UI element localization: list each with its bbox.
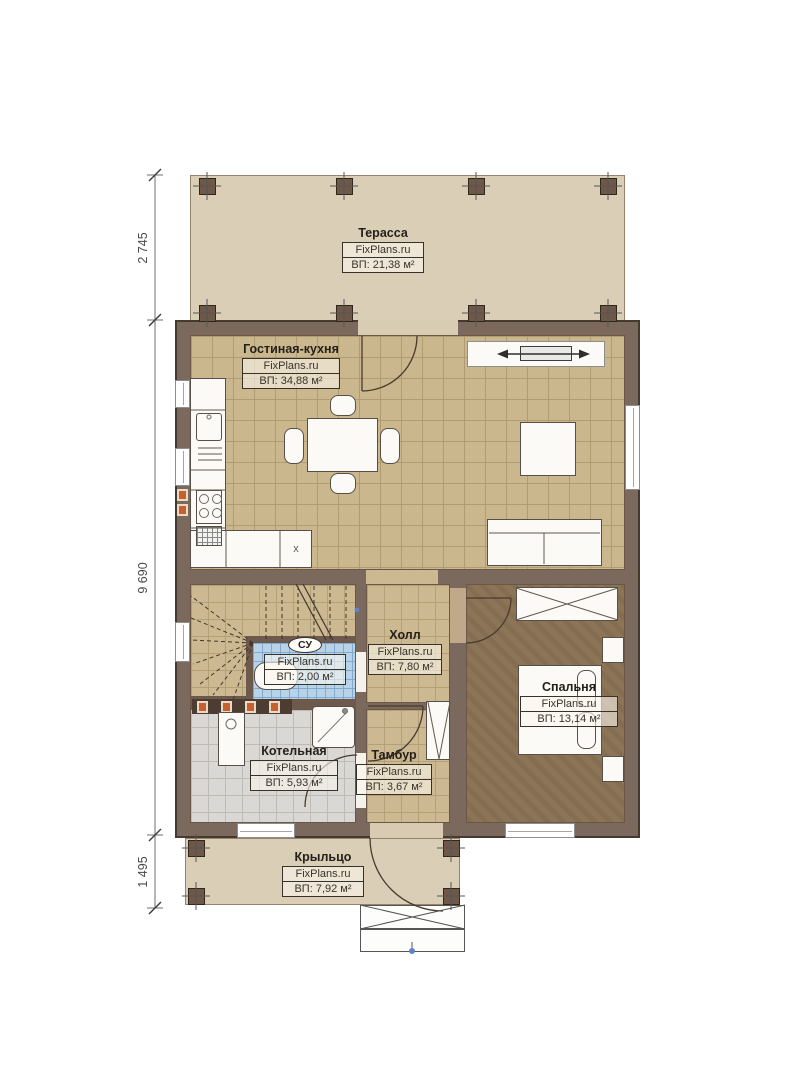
- area-row: ВП: 7,92 м²: [283, 882, 363, 896]
- brand-row: FixPlans.ru: [521, 697, 617, 712]
- floor-plan: 2 745 9 690 1 495 x: [0, 0, 792, 1080]
- area-row: ВП: 21,38 м²: [343, 258, 423, 272]
- label-box: FixPlans.ru ВП: 7,92 м²: [282, 866, 364, 897]
- tv: [520, 346, 572, 361]
- brand-row: FixPlans.ru: [251, 761, 337, 776]
- appliance-mark: x: [280, 532, 312, 566]
- column-post: [468, 305, 485, 322]
- area-row: ВП: 13,14 м²: [521, 712, 617, 726]
- bathroom-door-opening: [356, 652, 366, 692]
- terrace-door-opening: [358, 320, 458, 335]
- column-post: [443, 840, 460, 857]
- area-row: ВП: 5,93 м²: [251, 776, 337, 790]
- column-post: [600, 178, 617, 195]
- shower-tray: [312, 706, 355, 748]
- column-post: [336, 178, 353, 195]
- entry-step-upper: [360, 905, 465, 929]
- room-name: Спальня: [542, 680, 596, 694]
- chair: [330, 395, 356, 416]
- column-post: [199, 305, 216, 322]
- nightstand: [602, 756, 624, 782]
- chair: [284, 428, 304, 464]
- label-box: FixPlans.ru ВП: 34,88 м²: [242, 358, 340, 389]
- brand-row: FixPlans.ru: [243, 359, 339, 374]
- brand-row: FixPlans.ru: [265, 655, 345, 670]
- label-box: FixPlans.ru ВП: 7,80 м²: [368, 644, 442, 675]
- room-name: Холл: [389, 628, 420, 642]
- living-hall-opening: [366, 570, 438, 584]
- vent-block-icon: [245, 701, 256, 713]
- coffee-table: [520, 422, 576, 476]
- column-post: [336, 305, 353, 322]
- window: [505, 823, 575, 838]
- dimension-value: 2 745: [136, 232, 150, 263]
- bedroom-label: Спальня FixPlans.ru ВП: 13,14 м²: [520, 680, 618, 727]
- window: [175, 448, 190, 486]
- label-box: FixPlans.ru ВП: 21,38 м²: [342, 242, 424, 273]
- label-box: FixPlans.ru ВП: 13,14 м²: [520, 696, 618, 727]
- boiler-room-label: Котельная FixPlans.ru ВП: 5,93 м²: [250, 744, 338, 791]
- brand-row: FixPlans.ru: [357, 765, 431, 780]
- vent-block-icon: [177, 504, 188, 516]
- vent-block-icon: [269, 701, 280, 713]
- window: [175, 622, 190, 662]
- area-row: ВП: 34,88 м²: [243, 374, 339, 388]
- porch-label: Крыльцо FixPlans.ru ВП: 7,92 м²: [282, 850, 364, 897]
- dimension-value: 1 495: [136, 856, 150, 887]
- room-name: Котельная: [261, 744, 326, 758]
- dimension-value: 9 690: [136, 562, 150, 593]
- brand-row: FixPlans.ru: [343, 243, 423, 258]
- bedroom-door-opening: [450, 588, 466, 643]
- brand-row: FixPlans.ru: [283, 867, 363, 882]
- column-post: [443, 888, 460, 905]
- dining-table: [307, 418, 378, 472]
- chair: [380, 428, 400, 464]
- entry-step-lower: [360, 929, 465, 952]
- area-row: ВП: 2,00 м²: [265, 670, 345, 684]
- area-row: ВП: 7,80 м²: [369, 660, 441, 674]
- vent-block-icon: [177, 489, 188, 501]
- tambour-label: Тамбур FixPlans.ru ВП: 3,67 м²: [356, 748, 432, 795]
- area-row: ВП: 3,67 м²: [357, 780, 431, 794]
- dimension-lines: [147, 169, 163, 914]
- column-post: [199, 178, 216, 195]
- label-box: FixPlans.ru ВП: 3,67 м²: [356, 764, 432, 795]
- entrance-door-opening: [370, 823, 443, 838]
- room-name: СУ: [288, 637, 322, 653]
- stove: [196, 490, 222, 524]
- terrace-label: Терасса FixPlans.ru ВП: 21,38 м²: [342, 226, 424, 273]
- label-box: FixPlans.ru ВП: 5,93 м²: [250, 760, 338, 791]
- sofa: [487, 519, 602, 566]
- chair: [330, 473, 356, 494]
- column-post: [188, 888, 205, 905]
- window: [625, 405, 640, 490]
- bathroom-label: СУ FixPlans.ru ВП: 2,00 м²: [264, 637, 346, 685]
- vent-block-icon: [197, 701, 208, 713]
- brand-row: FixPlans.ru: [369, 645, 441, 660]
- boiler-unit: [218, 712, 245, 766]
- room-name: Крыльцо: [295, 850, 352, 864]
- window: [237, 823, 295, 838]
- room-name: Тамбур: [371, 748, 416, 762]
- living-kitchen-label: Гостиная-кухня FixPlans.ru ВП: 34,88 м²: [242, 342, 340, 389]
- hall-label: Холл FixPlans.ru ВП: 7,80 м²: [368, 628, 442, 675]
- column-post: [468, 178, 485, 195]
- wardrobe: [516, 587, 618, 621]
- label-box: FixPlans.ru ВП: 2,00 м²: [264, 654, 346, 685]
- room-name: Терасса: [358, 226, 408, 240]
- kitchen-sink: [196, 413, 222, 441]
- kitchen-hob-grid: [196, 526, 222, 546]
- nightstand: [602, 637, 624, 663]
- column-post: [188, 840, 205, 857]
- column-post: [600, 305, 617, 322]
- window: [175, 380, 190, 408]
- room-name: Гостиная-кухня: [243, 342, 339, 356]
